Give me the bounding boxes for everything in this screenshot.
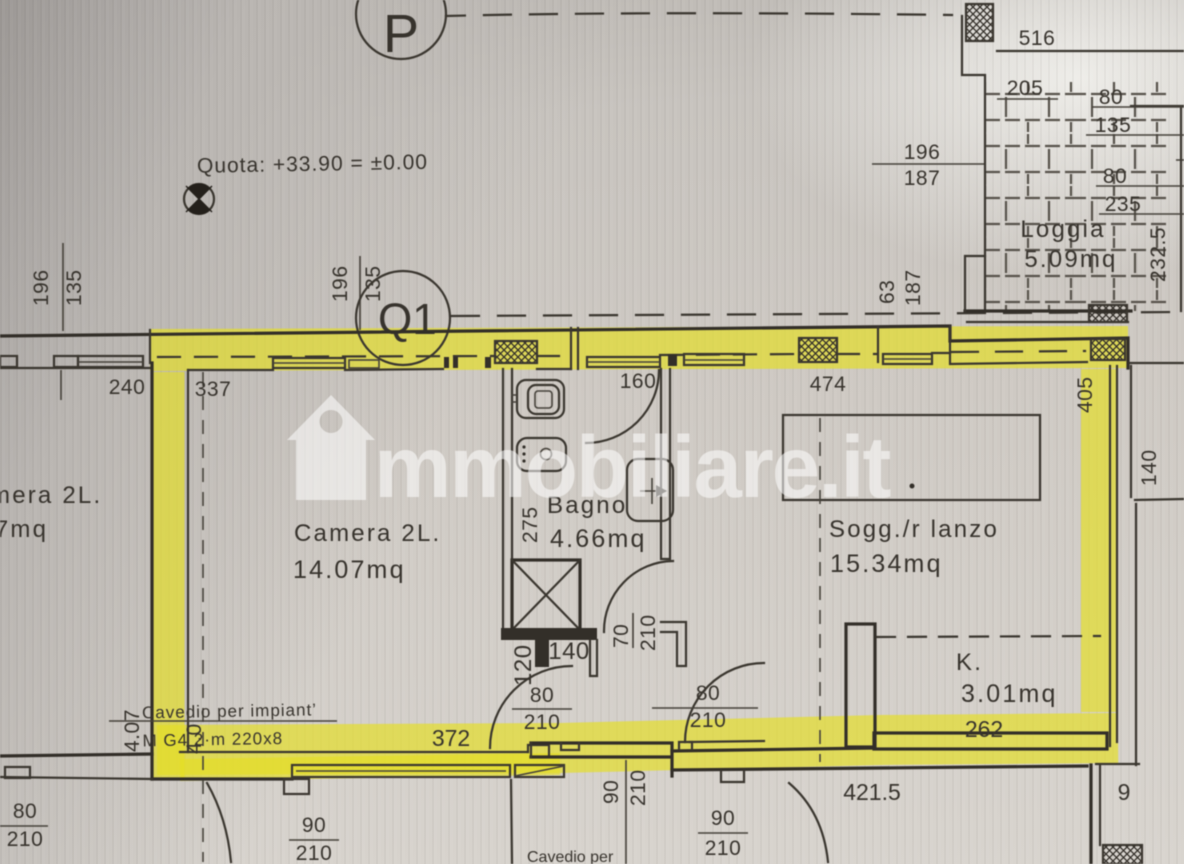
svg-text:372: 372 (432, 725, 470, 751)
svg-text:80: 80 (13, 800, 37, 823)
svg-text:135: 135 (63, 269, 86, 306)
svg-text:90: 90 (711, 807, 735, 830)
svg-text:140: 140 (1138, 449, 1161, 486)
svg-text:M G4 2·m 220x8: M G4 2·m 220x8 (142, 729, 283, 750)
svg-text:337: 337 (195, 378, 232, 401)
svg-text:.7mq: .7mq (0, 516, 48, 543)
svg-text:210: 210 (296, 842, 333, 864)
svg-text:187: 187 (904, 167, 941, 190)
svg-text:210: 210 (7, 828, 44, 851)
svg-text:210: 210 (627, 769, 650, 806)
svg-text:15.34mq: 15.34mq (830, 550, 943, 578)
svg-text:80: 80 (530, 684, 554, 707)
svg-text:135: 135 (1095, 114, 1132, 137)
svg-text:120: 120 (510, 644, 537, 686)
svg-text:Sogg./r lanzo: Sogg./r lanzo (829, 516, 999, 543)
svg-text:421.5: 421.5 (843, 779, 901, 805)
svg-text:90: 90 (600, 780, 623, 804)
svg-text:mera 2L.: mera 2L. (0, 482, 102, 509)
svg-text:516: 516 (1019, 27, 1056, 50)
svg-text:90: 90 (302, 814, 326, 837)
svg-text:235: 235 (1105, 193, 1142, 216)
svg-text:240: 240 (109, 376, 146, 399)
svg-text:Quota: +33.90 = ±0.00: Quota: +33.90 = ±0.00 (197, 151, 428, 178)
svg-text:205: 205 (1007, 77, 1044, 100)
svg-text:4.0: 4.0 (183, 723, 206, 754)
svg-text:mmobiliare.it: mmobiliare.it (374, 419, 890, 516)
svg-text:210: 210 (690, 709, 727, 732)
svg-text:187: 187 (902, 269, 925, 306)
svg-text:160: 160 (620, 370, 657, 393)
svg-text:210: 210 (637, 614, 660, 651)
svg-text:80: 80 (696, 682, 720, 705)
svg-text:210: 210 (524, 711, 561, 734)
svg-text:140: 140 (548, 638, 590, 665)
svg-text:9: 9 (1118, 779, 1131, 805)
svg-text:405: 405 (1074, 376, 1097, 413)
svg-text:3.01mq: 3.01mq (961, 680, 1058, 708)
svg-text:5.09mq: 5.09mq (1024, 246, 1117, 273)
svg-text:80: 80 (1103, 165, 1127, 188)
svg-text:14.07mq: 14.07mq (293, 556, 406, 584)
svg-text:K.: K. (956, 649, 983, 676)
svg-text:196: 196 (904, 141, 941, 164)
svg-text:232.5: 232.5 (1147, 227, 1170, 282)
svg-text:4.66mq: 4.66mq (550, 525, 647, 553)
svg-text:210: 210 (705, 837, 742, 860)
svg-text:196: 196 (30, 269, 53, 306)
svg-text:70: 70 (610, 624, 633, 648)
svg-text:196: 196 (329, 265, 352, 302)
svg-text:Cavedio per: Cavedio per (527, 849, 614, 864)
svg-text:4.07: 4.07 (121, 709, 144, 752)
svg-text:Cavedio per impiant’: Cavedio per impiant’ (142, 700, 317, 722)
svg-text:80: 80 (1099, 86, 1123, 109)
svg-text:262: 262 (965, 716, 1003, 742)
svg-text:Loggia: Loggia (1020, 216, 1105, 243)
svg-text:Q1: Q1 (378, 295, 437, 344)
svg-text:63: 63 (876, 280, 899, 304)
svg-text:474: 474 (810, 373, 847, 396)
svg-text:Camera 2L.: Camera 2L. (294, 520, 441, 547)
svg-text:P: P (383, 4, 419, 64)
